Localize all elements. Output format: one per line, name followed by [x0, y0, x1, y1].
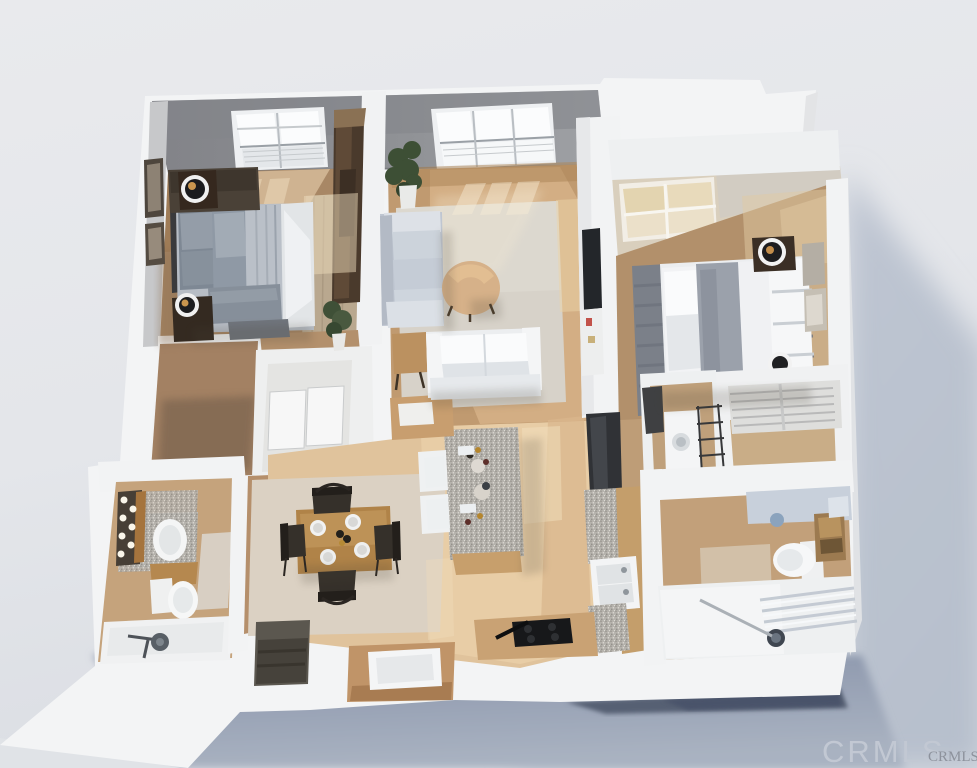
svg-text:CRMLS: CRMLS	[822, 734, 946, 768]
svg-text:CRMLS: CRMLS	[928, 749, 977, 765]
